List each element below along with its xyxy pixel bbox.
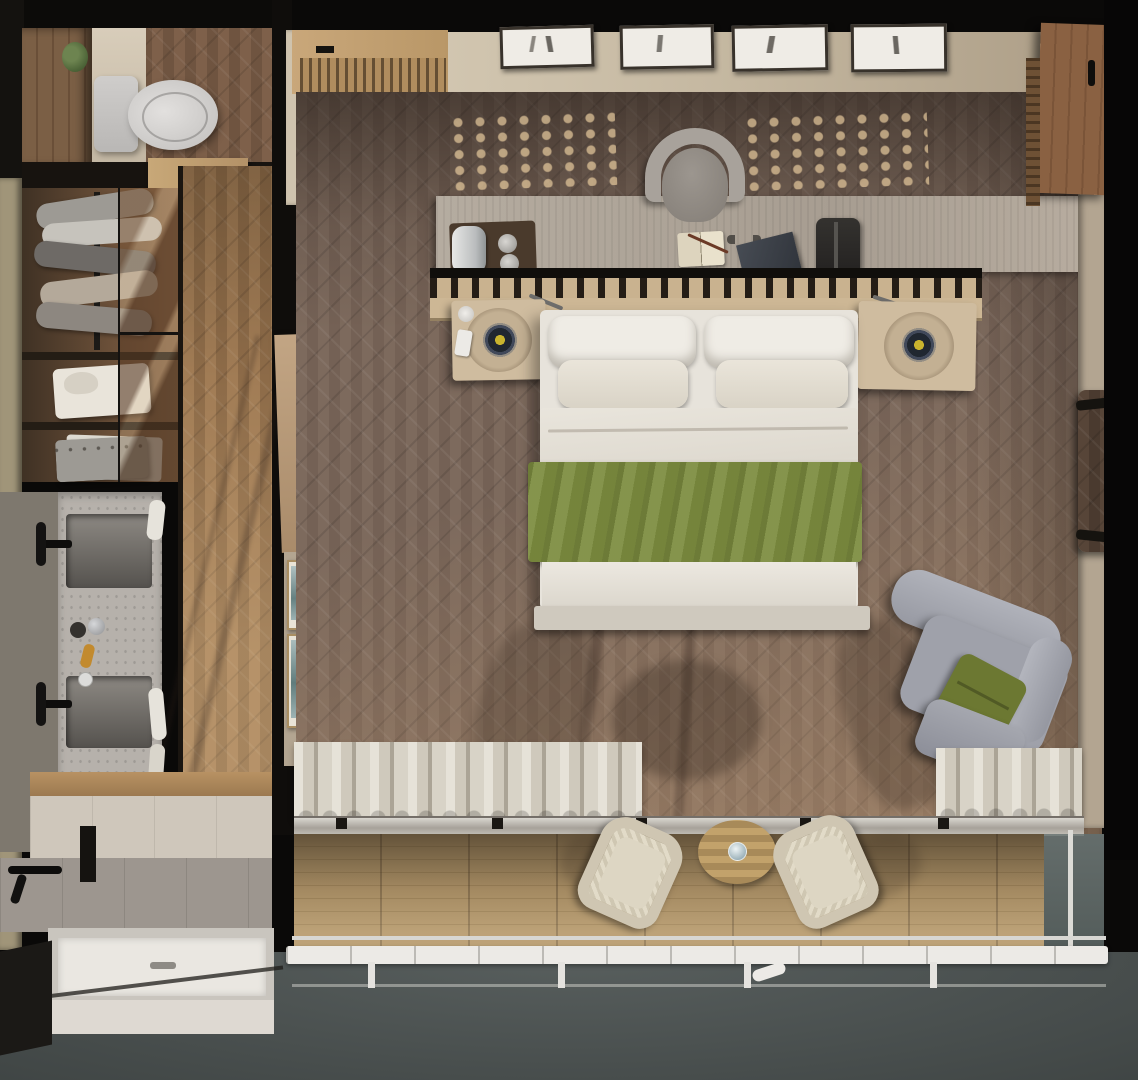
bedroom-top-frame — [292, 0, 1138, 32]
railing-top-line — [292, 936, 1106, 940]
speaker-left — [481, 321, 519, 359]
entry-door — [1035, 23, 1113, 195]
curtain-left — [294, 742, 642, 818]
railing-post-1 — [368, 962, 375, 988]
sheet-below-blanket — [542, 562, 856, 608]
plant — [62, 42, 88, 72]
wall-art-frame-2-sketch — [632, 35, 694, 52]
railing-post-4 — [930, 962, 937, 988]
cup-1 — [498, 234, 517, 253]
shower-niche — [80, 826, 96, 882]
hand-towel-1 — [146, 499, 166, 540]
railing-lower-line — [292, 984, 1106, 987]
wall-art-frame-3-sketch — [746, 36, 808, 53]
curtain-right — [936, 748, 1082, 816]
window-track — [294, 816, 1084, 836]
shower-fixture-bar — [8, 866, 62, 874]
entry-coat-hook — [316, 46, 334, 53]
bathroom-left-frame-top — [0, 0, 24, 185]
dappled-light-left — [447, 109, 618, 191]
wardrobe-edge-line — [178, 166, 183, 772]
toilet-seat-line — [142, 92, 208, 142]
shower-sill — [30, 772, 272, 796]
glass-frame-line-right — [1068, 830, 1073, 960]
shower-wall-beige — [30, 796, 272, 858]
faucet-bottom-body — [36, 682, 46, 726]
dappled-light-right — [741, 109, 930, 191]
railing-post-2 — [558, 962, 565, 988]
apartment-top-view — [0, 0, 1138, 1080]
shower-drain — [150, 962, 176, 969]
wardrobe-glass-door-split — [118, 332, 182, 335]
track-stop-5 — [938, 818, 949, 829]
sink-basin-top — [66, 514, 152, 588]
bathroom-bottom-corner — [0, 940, 52, 1055]
green-throw-blanket — [528, 462, 862, 562]
mug — [458, 306, 474, 322]
toiletry-silver-jar — [88, 618, 105, 635]
sink-basin-bottom — [66, 676, 152, 748]
faucet-bottom — [42, 700, 72, 708]
bathroom-top-frame — [0, 0, 292, 30]
faucet-top-body — [36, 522, 46, 566]
toiletry-glass — [78, 672, 93, 687]
headboard-slat-teeth — [430, 278, 982, 298]
track-stop-2 — [492, 818, 503, 829]
speaker-right — [900, 326, 938, 364]
entry-mat — [300, 58, 446, 92]
entry-door-grille — [1026, 58, 1040, 206]
drinking-glass — [728, 842, 747, 861]
hand-towel-2 — [148, 687, 167, 740]
wall-art-frame-4-sketch — [865, 36, 927, 54]
toiletry-dark-jar — [70, 622, 86, 638]
wall-art-frame-1-sketch — [512, 36, 574, 52]
track-stop-1 — [336, 818, 347, 829]
footboard-bench — [534, 606, 870, 630]
entry-door-handle — [1088, 60, 1095, 86]
right-outer-frame — [1104, 0, 1138, 860]
faucet-top — [42, 540, 72, 548]
lumbar-pillow-left — [558, 360, 688, 408]
railing-main-bar — [286, 946, 1108, 964]
lumbar-pillow-right — [716, 360, 848, 408]
shower-tile-lower — [48, 1000, 274, 1034]
coffee-machine — [452, 226, 486, 274]
railing-post-3 — [744, 962, 751, 988]
desk-chair-seat — [662, 148, 728, 222]
wardrobe-glass-door — [118, 188, 185, 482]
